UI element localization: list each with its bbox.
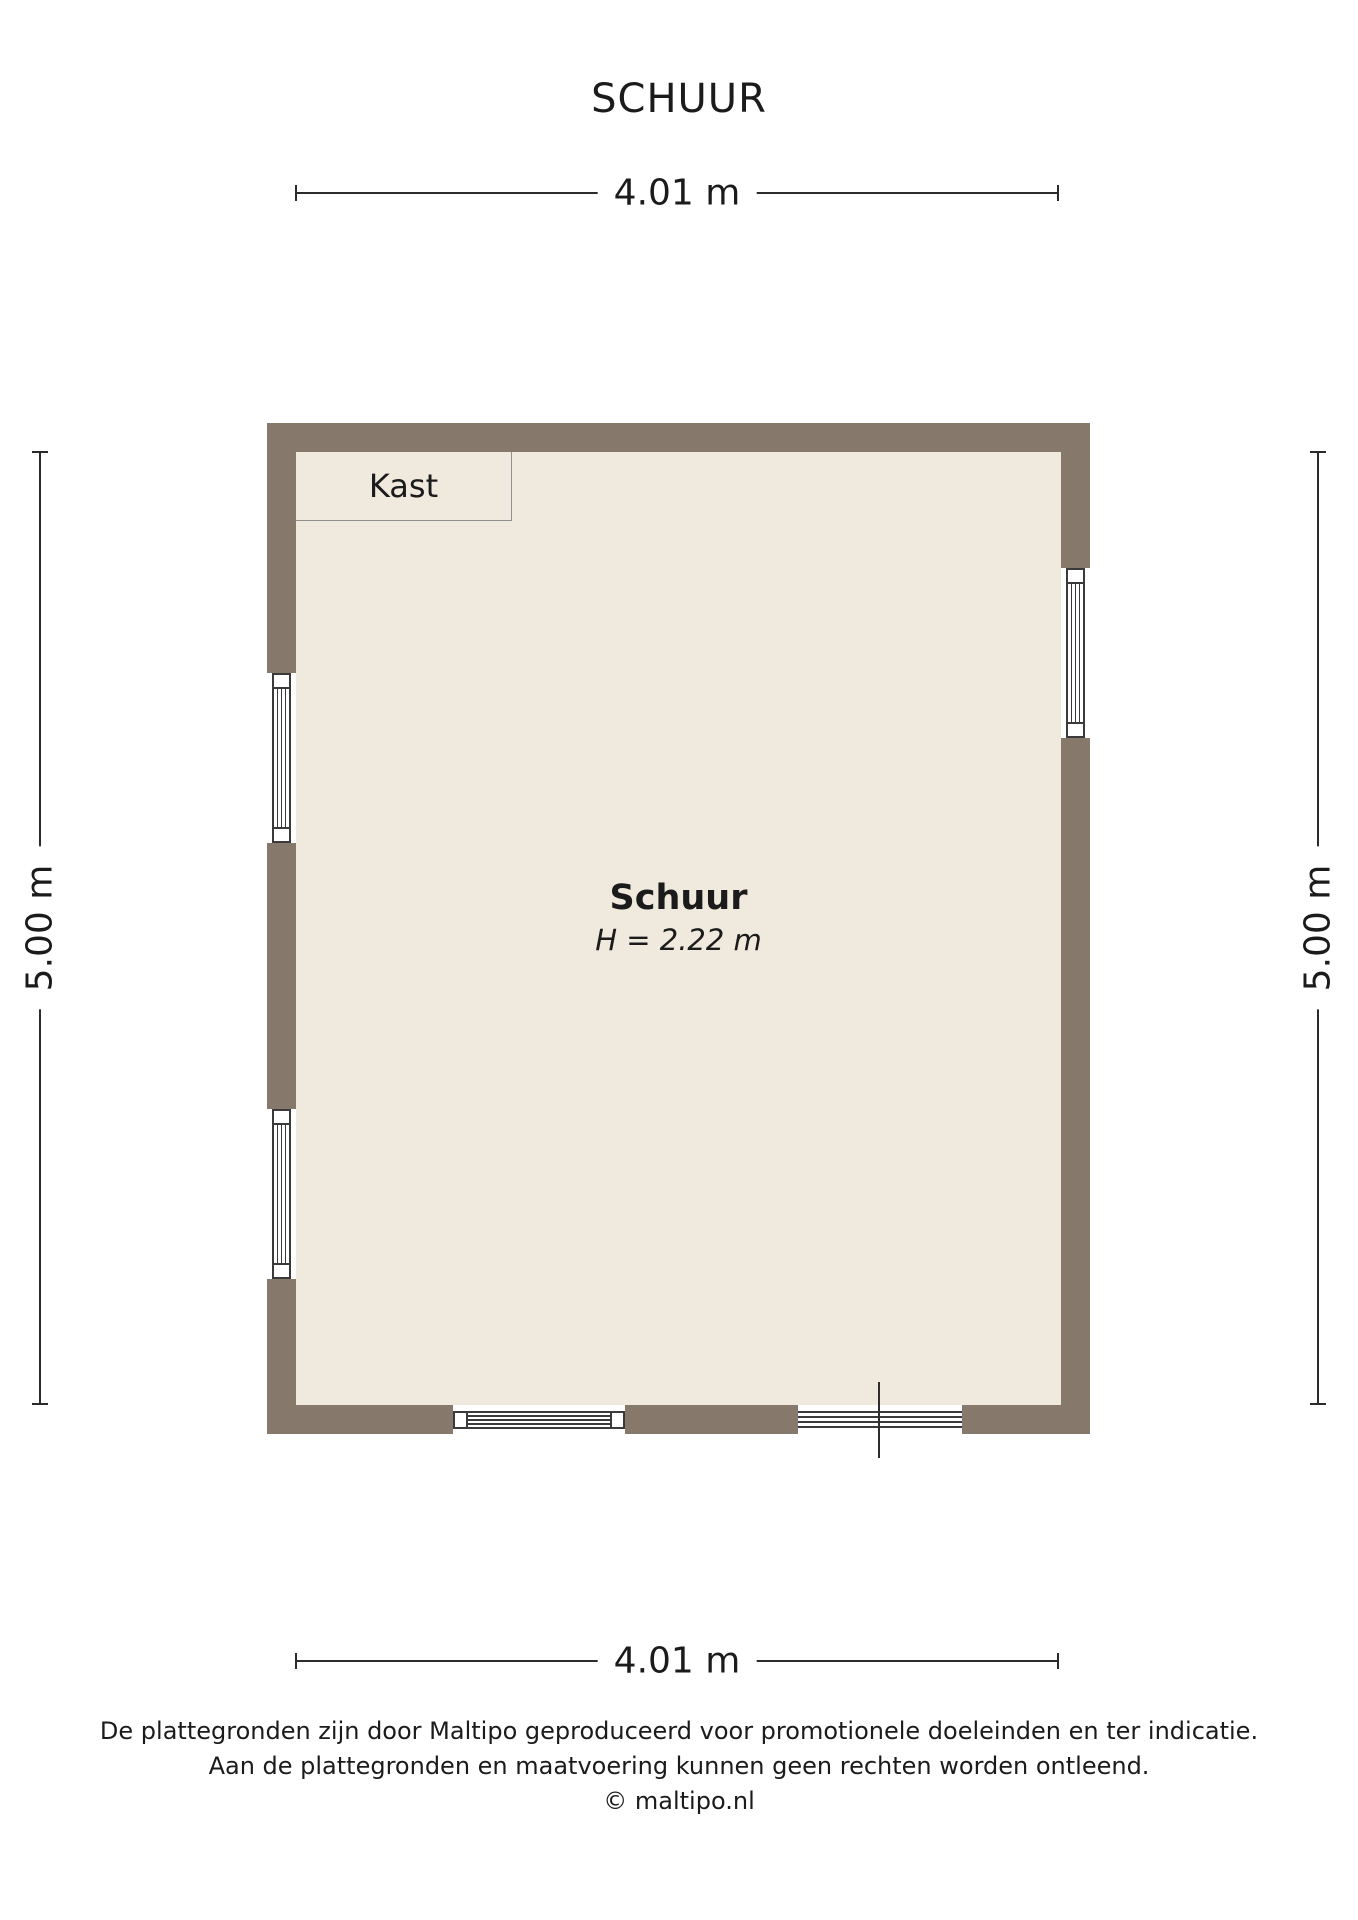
window-frame — [272, 673, 291, 843]
footer-line-1: De plattegronden zijn door Maltipo gepro… — [0, 1714, 1358, 1749]
footer-disclaimer: De plattegronden zijn door Maltipo gepro… — [0, 1714, 1358, 1819]
window-left-upper — [267, 673, 296, 843]
room-height-label: H = 2.22 m — [296, 922, 1061, 958]
room-label: Schuur — [296, 878, 1061, 918]
dimension-label-left: 5.00 m — [20, 847, 61, 1010]
copyright: © maltipo.nl — [0, 1784, 1358, 1819]
dimension-label-right: 5.00 m — [1298, 847, 1339, 1010]
closet-label: Kast — [369, 467, 438, 505]
dimension-tick — [1310, 451, 1326, 453]
window-frame — [272, 1109, 291, 1279]
door-swing-line — [878, 1382, 880, 1458]
dimension-tick — [1310, 1403, 1326, 1405]
dimension-tick — [295, 185, 297, 201]
dimension-right: 5.00 m — [1308, 451, 1328, 1405]
window-frame — [1066, 568, 1085, 738]
door-opening — [798, 1405, 962, 1434]
dimension-label-top: 4.01 m — [598, 173, 757, 214]
dimension-label-bottom: 4.01 m — [598, 1641, 757, 1682]
window-left-lower — [267, 1109, 296, 1279]
dimension-left: 5.00 m — [30, 451, 50, 1405]
dimension-bottom: 4.01 m — [295, 1646, 1059, 1676]
floorplan-page: SCHUUR 4.01 m 4.01 m 5.00 m 5.00 m Kast — [0, 0, 1358, 1920]
dimension-tick — [32, 1403, 48, 1405]
dimension-top: 4.01 m — [295, 178, 1059, 208]
footer-line-2: Aan de plattegronden en maatvoering kunn… — [0, 1749, 1358, 1784]
dimension-tick — [1057, 1653, 1059, 1669]
dimension-tick — [295, 1653, 297, 1669]
window-right — [1061, 568, 1090, 738]
dimension-tick — [32, 451, 48, 453]
window-bottom — [453, 1405, 625, 1434]
dimension-tick — [1057, 185, 1059, 201]
page-title: SCHUUR — [0, 76, 1358, 122]
closet-box: Kast — [296, 452, 512, 521]
window-frame — [453, 1411, 625, 1429]
